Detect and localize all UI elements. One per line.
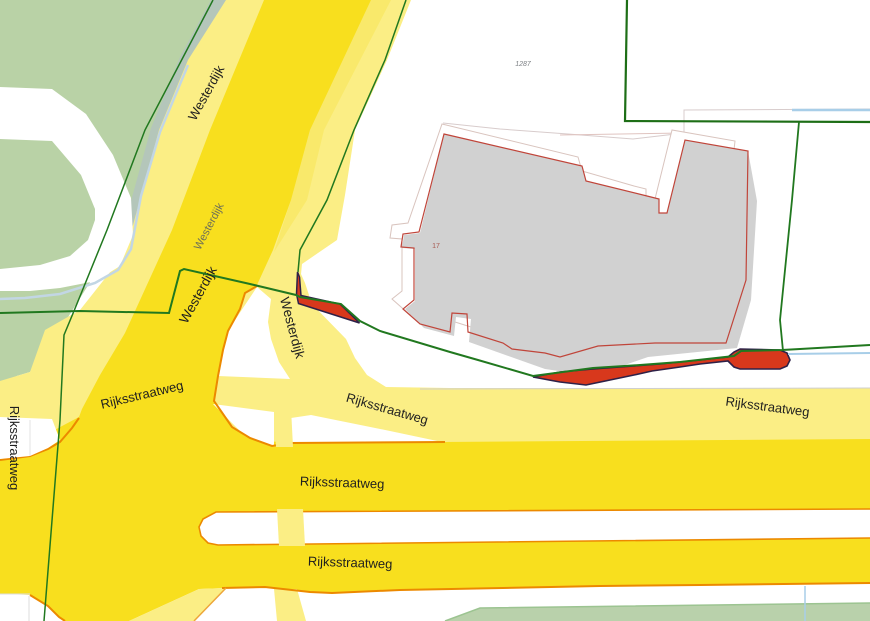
svg-text:1287: 1287 <box>515 61 532 68</box>
svg-text:Rijksstraatweg: Rijksstraatweg <box>7 406 22 491</box>
svg-text:Rijksstraatweg: Rijksstraatweg <box>300 474 385 492</box>
svg-text:17: 17 <box>432 243 440 250</box>
svg-text:Rijksstraatweg: Rijksstraatweg <box>308 554 393 572</box>
